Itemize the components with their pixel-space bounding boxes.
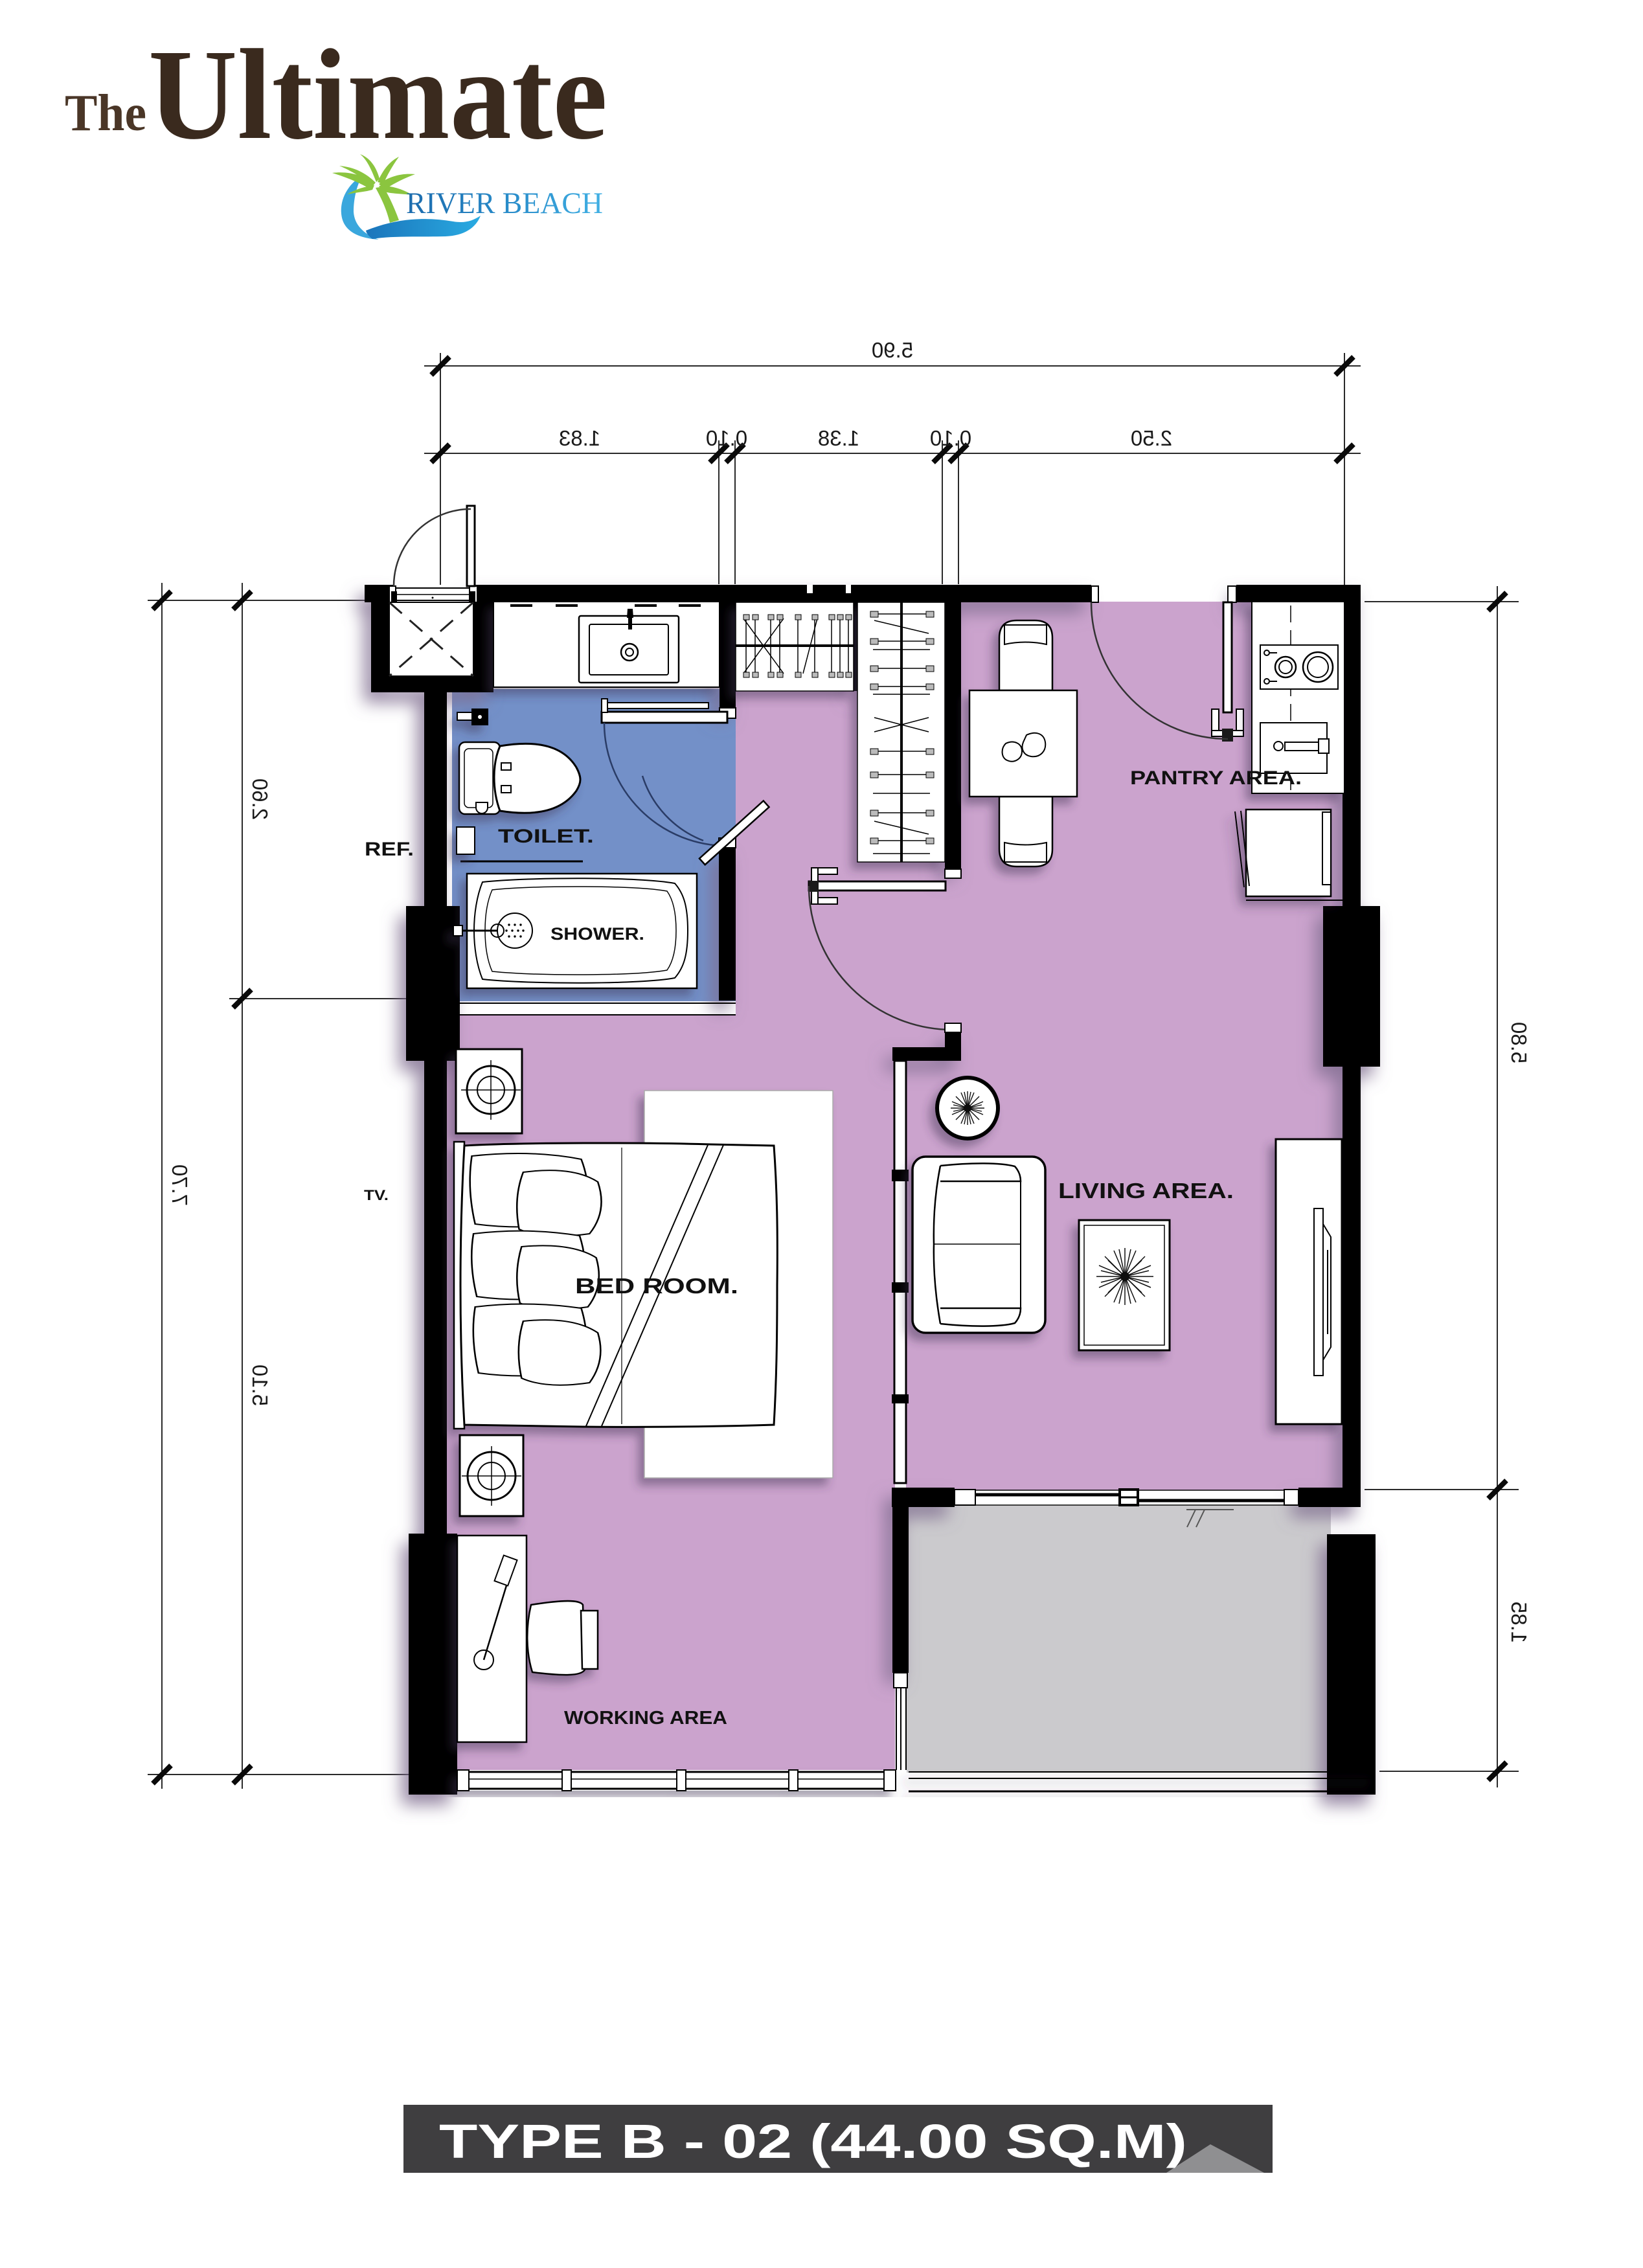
- svg-text:5.90: 5.90: [872, 338, 913, 362]
- svg-text:0.10: 0.10: [930, 426, 971, 450]
- svg-text:2.60: 2.60: [248, 778, 272, 820]
- svg-text:TYPE B - 02 (44.00 SQ.M): TYPE B - 02 (44.00 SQ.M): [439, 2115, 1187, 2168]
- svg-text:RIVER BEACH: RIVER BEACH: [406, 187, 603, 220]
- svg-text:SHOWER.: SHOWER.: [550, 924, 644, 944]
- svg-text:TOILET.: TOILET.: [498, 826, 594, 847]
- svg-text:TV.: TV.: [364, 1187, 389, 1203]
- svg-text:BED ROOM.: BED ROOM.: [575, 1274, 738, 1298]
- svg-text:REF.: REF.: [365, 839, 414, 860]
- svg-text:The: The: [65, 85, 146, 142]
- svg-text:2.50: 2.50: [1131, 426, 1172, 450]
- svg-text:7.70: 7.70: [168, 1164, 192, 1206]
- svg-text:PANTRY AREA.: PANTRY AREA.: [1130, 767, 1302, 789]
- svg-text:1.38: 1.38: [818, 426, 859, 450]
- svg-text:0.10: 0.10: [706, 426, 747, 450]
- svg-text:1.83: 1.83: [559, 426, 600, 450]
- svg-text:Ultimate: Ultimate: [148, 23, 607, 166]
- svg-text:5.80: 5.80: [1507, 1022, 1531, 1063]
- svg-text:LIVING AREA.: LIVING AREA.: [1058, 1179, 1234, 1203]
- svg-text:WORKING AREA: WORKING AREA: [564, 1708, 727, 1729]
- svg-text:1.85: 1.85: [1507, 1602, 1531, 1643]
- svg-text:5.10: 5.10: [248, 1365, 272, 1406]
